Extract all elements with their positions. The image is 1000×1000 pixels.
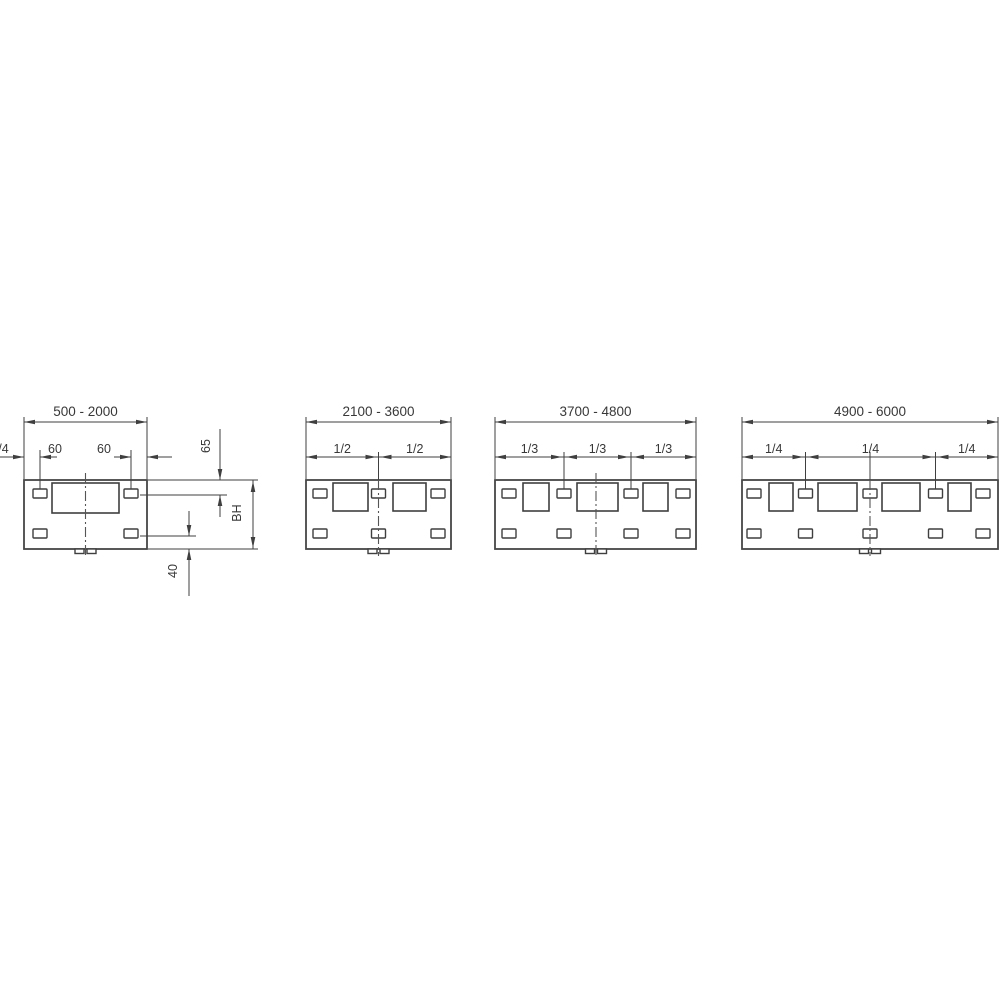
mounting-slot <box>976 489 990 498</box>
dim-arrow <box>147 455 158 460</box>
bottom-tab <box>368 549 377 554</box>
bottom-tab <box>87 549 96 554</box>
mounting-slot <box>502 489 516 498</box>
dim-arrow <box>923 455 934 460</box>
dim-arrow <box>566 455 577 460</box>
dim-arrow <box>187 525 192 536</box>
dim-arrow <box>251 537 256 548</box>
dim-arrow <box>742 455 753 460</box>
mounting-slot <box>431 529 445 538</box>
mounting-slot <box>557 529 571 538</box>
fraction-label: 1/4 <box>0 442 9 456</box>
panel-width-3700-4800: 3700 - 48001/31/31/3 <box>495 404 696 556</box>
panel-dimension-diagram: 500 - 200060602100 - 36001/21/23700 - 48… <box>0 0 1000 1000</box>
bottom-tab <box>586 549 595 554</box>
fraction-label: 1/3 <box>655 442 672 456</box>
fraction-label: 1/3 <box>589 442 606 456</box>
cutout-window <box>769 483 793 511</box>
dim-arrow <box>440 420 451 425</box>
fraction-label: 1/4 <box>862 442 879 456</box>
dim-arrow <box>742 420 753 425</box>
mounting-slot <box>747 489 761 498</box>
dim-arrow <box>495 455 506 460</box>
mounting-slot <box>799 489 813 498</box>
dim-arrow <box>808 455 819 460</box>
dim-arrow <box>136 420 147 425</box>
bottom-tab <box>380 549 389 554</box>
dim-arrow <box>24 420 35 425</box>
bottom-tab <box>872 549 881 554</box>
dim-arrow <box>685 455 696 460</box>
dim-arrow <box>938 455 949 460</box>
mounting-slot <box>124 529 138 538</box>
mounting-slot <box>976 529 990 538</box>
dim-label-65: 65 <box>199 439 213 453</box>
dim-arrow <box>306 455 317 460</box>
mounting-slot <box>929 529 943 538</box>
mounting-slot <box>124 489 138 498</box>
mounting-slot <box>557 489 571 498</box>
mounting-slot <box>676 489 690 498</box>
fraction-label: 1/2 <box>406 442 423 456</box>
dim-arrow <box>218 469 223 480</box>
cutout-window <box>577 483 618 511</box>
technical-drawing-canvas: 500 - 200060602100 - 36001/21/23700 - 48… <box>0 0 1000 1000</box>
dim-arrow <box>685 420 696 425</box>
range-label: 3700 - 4800 <box>559 404 631 419</box>
mounting-slot <box>624 489 638 498</box>
fraction-label: 1/2 <box>334 442 351 456</box>
dim-arrow <box>633 455 644 460</box>
dim-arrow <box>218 495 223 506</box>
mounting-slot <box>33 529 47 538</box>
range-label: 4900 - 6000 <box>834 404 906 419</box>
fraction-label: 1/3 <box>521 442 538 456</box>
bottom-tab <box>860 549 869 554</box>
dim-arrow <box>13 455 24 460</box>
dim-arrow <box>987 455 998 460</box>
mounting-slot <box>799 529 813 538</box>
dim-arrow <box>551 455 562 460</box>
mounting-slot <box>624 529 638 538</box>
mounting-slot <box>33 489 47 498</box>
range-label: 2100 - 3600 <box>342 404 414 419</box>
bottom-tab <box>598 549 607 554</box>
dim-arrow <box>495 420 506 425</box>
cutout-window <box>393 483 426 511</box>
bottom-tab <box>75 549 84 554</box>
dim-arrow <box>120 455 131 460</box>
mounting-slot <box>676 529 690 538</box>
dim-arrow <box>251 481 256 492</box>
dim-arrow <box>987 420 998 425</box>
range-label: 500 - 2000 <box>53 404 118 419</box>
side-dimensions: 65BH40 <box>140 429 258 596</box>
cutout-window <box>333 483 368 511</box>
dim-arrow <box>187 549 192 560</box>
cutout-window <box>948 483 971 511</box>
dim-arrow <box>618 455 629 460</box>
mounting-slot <box>747 529 761 538</box>
offset-label: 60 <box>48 442 62 456</box>
panel-width-2100-3600: 2100 - 36001/21/2 <box>306 404 451 556</box>
cutout-window <box>818 483 857 511</box>
dim-arrow <box>793 455 804 460</box>
mounting-slot <box>929 489 943 498</box>
dim-arrow <box>381 455 392 460</box>
dim-arrow <box>306 420 317 425</box>
dim-label-BH: BH <box>230 504 244 521</box>
mounting-slot <box>431 489 445 498</box>
cutout-window <box>643 483 668 511</box>
dim-label-40: 40 <box>166 564 180 578</box>
panel-width-500-2000: 500 - 20006060 <box>0 404 172 556</box>
fraction-label: 1/4 <box>765 442 782 456</box>
dim-arrow <box>366 455 377 460</box>
offset-label: 60 <box>97 442 111 456</box>
mounting-slot <box>313 529 327 538</box>
fraction-label: 1/4 <box>958 442 975 456</box>
mounting-slot <box>313 489 327 498</box>
cutout-window <box>882 483 920 511</box>
mounting-slot <box>502 529 516 538</box>
cutout-window <box>523 483 549 511</box>
dim-arrow <box>440 455 451 460</box>
